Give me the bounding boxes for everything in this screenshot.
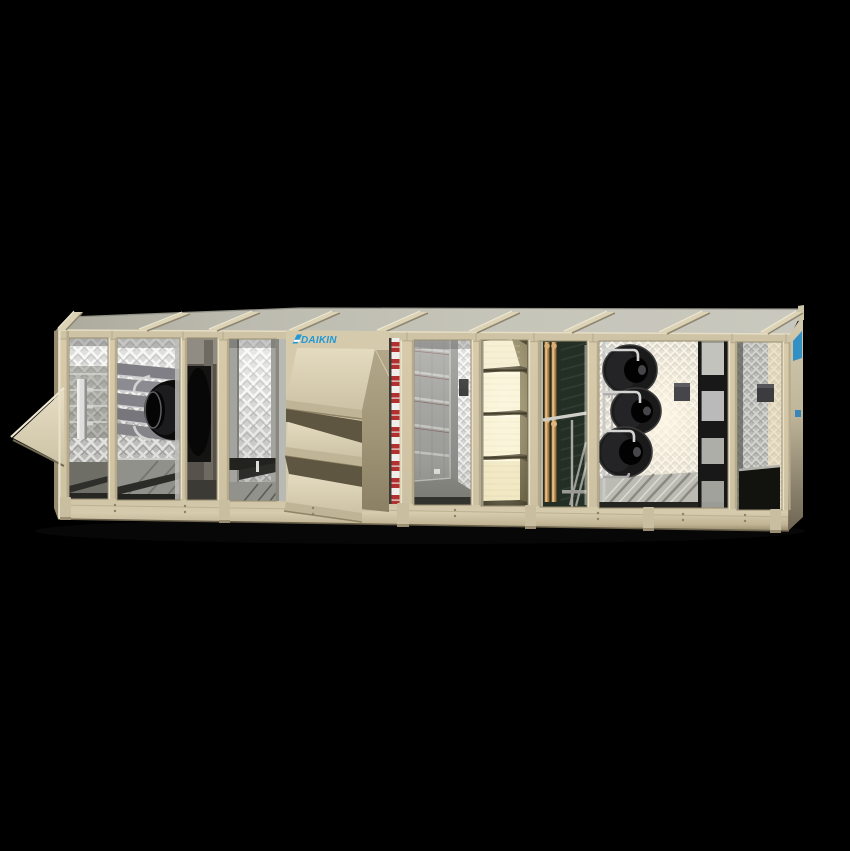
svg-text:DAIKIN: DAIKIN xyxy=(301,335,337,346)
